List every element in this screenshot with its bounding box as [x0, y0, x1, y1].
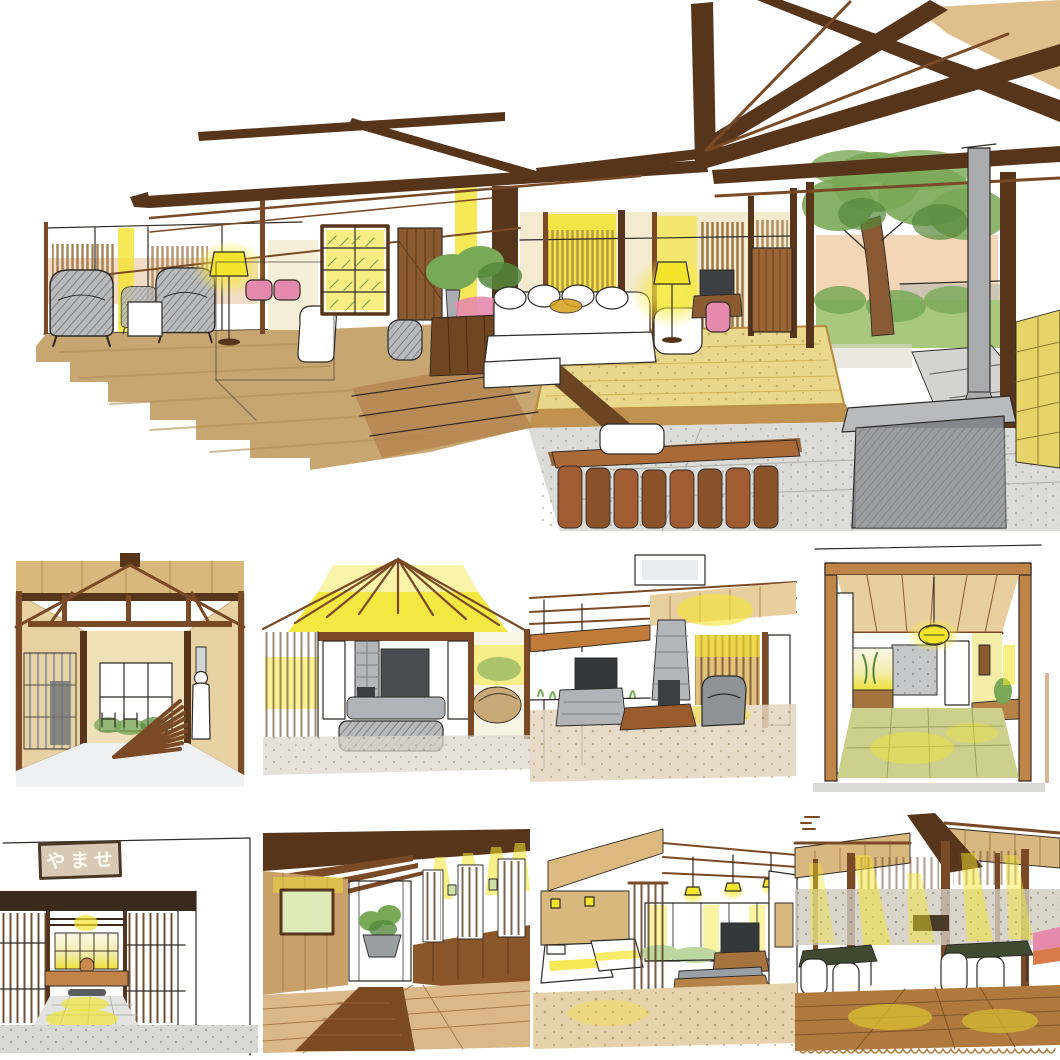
gray-armchair	[702, 676, 746, 726]
slat-divider	[629, 883, 667, 995]
genkan-platform	[45, 971, 128, 986]
bedroom-tv	[721, 923, 759, 953]
entrance-hall-sketch	[16, 553, 244, 787]
lounge-right-window	[468, 629, 531, 739]
pink-bench	[1033, 927, 1060, 965]
right-lattice	[125, 911, 185, 1025]
stone-chimney	[652, 620, 690, 706]
entrance-sign: やませ	[39, 842, 120, 879]
lounge-left-screen	[263, 632, 318, 737]
collage-figure: やませ	[0, 0, 1060, 1060]
stone-bench	[600, 424, 664, 454]
corridor-sketch	[263, 829, 530, 1053]
bench-table	[620, 704, 696, 730]
dining-floor	[795, 985, 1060, 1053]
slatted-door	[752, 248, 792, 332]
left-lattice	[0, 911, 48, 1025]
framed-picture	[281, 890, 333, 934]
right-wall-doors	[413, 859, 530, 995]
entrance-sign-text: やませ	[46, 849, 118, 873]
lounge-tv	[381, 649, 429, 697]
back-door	[945, 641, 969, 705]
header-beam	[0, 891, 196, 911]
bookshelf-cabinet	[322, 226, 388, 314]
left-wall	[263, 871, 348, 995]
tile-wall	[1016, 310, 1060, 468]
wood-deck	[552, 440, 800, 528]
sketch-collage: やませ	[0, 0, 1060, 1060]
tatami-floor	[837, 708, 1019, 778]
textured-panel	[892, 645, 937, 695]
